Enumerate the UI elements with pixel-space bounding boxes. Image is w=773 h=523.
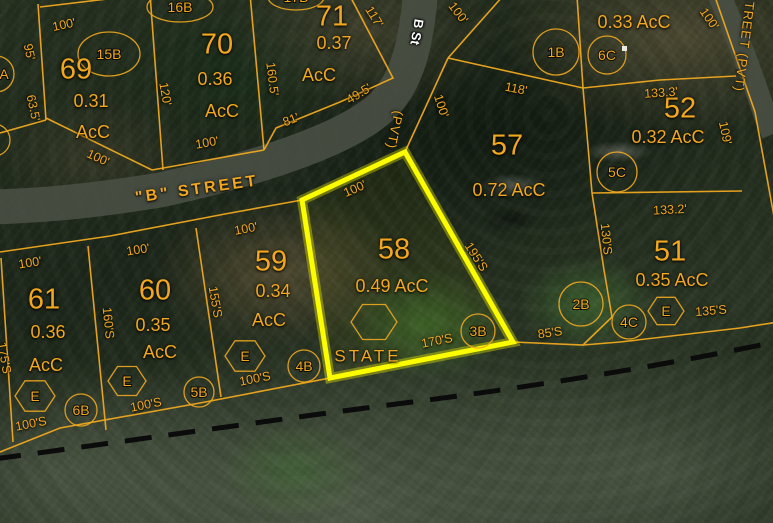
map-label: 63.5' xyxy=(24,94,42,123)
map-label: 61 xyxy=(28,286,60,315)
map-label: 100' xyxy=(51,16,76,33)
map-label: 100' xyxy=(342,179,368,200)
map-label: 0.33 AcC xyxy=(597,13,670,31)
map-label: 135'S xyxy=(695,303,728,318)
map-label: 70 xyxy=(201,31,233,60)
map-labels-layer: 697071575852516160590.31AcC0.36AcC0.37Ac… xyxy=(0,0,773,523)
map-label: 100' xyxy=(194,135,219,151)
map-label: 69 xyxy=(60,56,92,85)
map-label: AcC xyxy=(205,102,239,120)
map-label: B St xyxy=(408,18,425,46)
map-label: 155'S xyxy=(206,285,224,318)
map-label: 100' xyxy=(697,6,721,32)
map-label: 100' xyxy=(233,221,258,238)
map-label: 118' xyxy=(504,81,528,98)
map-label: 100'S xyxy=(238,370,271,388)
map-label: 81' xyxy=(281,111,301,129)
map-label: 58 xyxy=(378,236,410,265)
map-label: 0.72 AcC xyxy=(472,181,545,199)
map-label: 49.5' xyxy=(344,82,373,107)
map-label: "B" STREET xyxy=(134,173,259,206)
map-label: 100' xyxy=(431,93,450,119)
map-label: 100'S xyxy=(14,415,47,433)
map-label: 85'S xyxy=(537,325,563,341)
map-label: 100' xyxy=(85,148,111,169)
map-label: 0.32 AcC xyxy=(631,128,704,146)
map-label: 71 xyxy=(316,3,348,32)
map-label: 133.3' xyxy=(644,86,678,101)
map-label: AcC xyxy=(143,343,177,361)
map-label: STATE xyxy=(334,348,401,365)
map-label: 195'S xyxy=(462,240,490,273)
map-label: 60 xyxy=(139,277,171,306)
map-label: 0.34 xyxy=(255,282,290,300)
map-label: 0.36 xyxy=(30,323,65,341)
map-label: 133.2' xyxy=(653,203,687,217)
map-label: AcC xyxy=(302,66,336,84)
map-label: 100'S xyxy=(129,396,162,414)
map-label: 100' xyxy=(126,242,151,258)
map-label: 0.49 AcC xyxy=(355,277,428,295)
map-label: 0.36 xyxy=(197,70,232,88)
map-label: 175'S xyxy=(0,341,13,374)
map-label: 117' xyxy=(363,4,385,30)
map-label: 160'S xyxy=(100,307,116,340)
map-label: 0.37 xyxy=(316,34,351,52)
map-label: 0.35 xyxy=(135,316,170,334)
map-label: 95' xyxy=(21,43,37,62)
map-label: (PVT) xyxy=(385,110,406,151)
map-label: 109' xyxy=(716,120,733,145)
map-label: 51 xyxy=(654,238,686,267)
map-label: 130'S xyxy=(598,223,614,256)
map-label: 120' xyxy=(157,81,173,106)
map-label: 100' xyxy=(18,255,43,271)
map-label: 59 xyxy=(255,248,287,277)
map-label: 0.31 xyxy=(73,92,108,110)
map-label: STREET (PVT) xyxy=(732,0,757,93)
map-label: AcC xyxy=(76,123,110,141)
map-label: AcC xyxy=(252,311,286,329)
map-label: 0.35 AcC xyxy=(635,271,708,289)
map-label: 170'S xyxy=(420,332,453,350)
map-label: 160.5' xyxy=(264,62,281,97)
map-label: AcC xyxy=(29,356,63,374)
map-canvas[interactable]: 1B6C5C2B4C3B4B5B6BA15B16B17BEEEE 6970715… xyxy=(0,0,773,523)
map-label: 57 xyxy=(491,132,523,161)
map-label: 100' xyxy=(446,0,470,26)
